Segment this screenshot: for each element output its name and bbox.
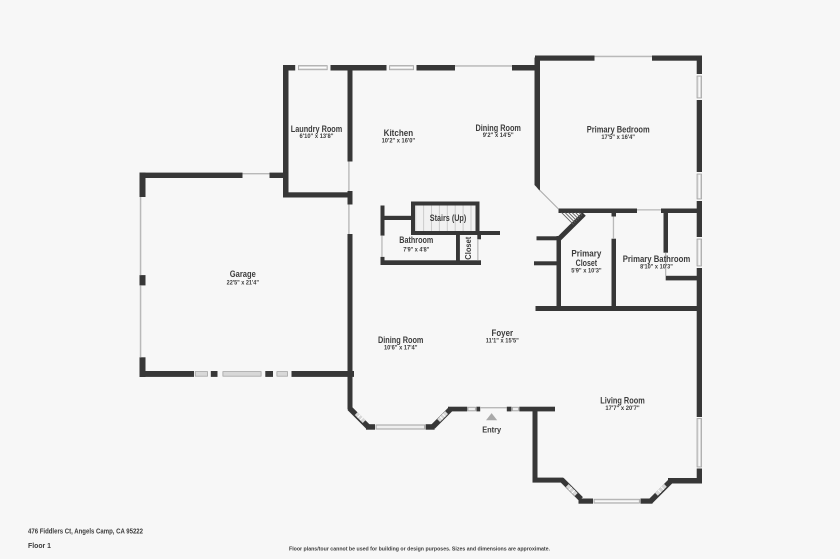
svg-text:Floor plans/tour cannot be use: Floor plans/tour cannot be used for buil… bbox=[289, 546, 550, 552]
svg-text:9'2" x 14'5": 9'2" x 14'5" bbox=[483, 133, 514, 139]
svg-text:Living Room: Living Room bbox=[600, 395, 645, 405]
svg-text:Garage: Garage bbox=[230, 269, 256, 279]
svg-text:Primary Bedroom: Primary Bedroom bbox=[587, 125, 650, 135]
svg-text:17'7" x 20'7": 17'7" x 20'7" bbox=[605, 406, 639, 412]
svg-text:6'10" x 13'8": 6'10" x 13'8" bbox=[300, 134, 334, 140]
svg-text:8'10" x 10'3": 8'10" x 10'3" bbox=[640, 265, 673, 271]
svg-text:11'1" x 15'5": 11'1" x 15'5" bbox=[486, 339, 519, 345]
svg-text:Bathroom: Bathroom bbox=[399, 235, 433, 245]
svg-text:Dining Room: Dining Room bbox=[475, 123, 521, 133]
svg-text:Floor 1: Floor 1 bbox=[28, 541, 51, 550]
svg-text:22'5" x 21'4": 22'5" x 21'4" bbox=[227, 281, 259, 287]
svg-text:10'2" x 16'0": 10'2" x 16'0" bbox=[382, 138, 416, 144]
svg-text:Primary Bathroom: Primary Bathroom bbox=[623, 254, 691, 264]
svg-text:Laundry Room: Laundry Room bbox=[291, 124, 343, 134]
svg-text:Closet: Closet bbox=[464, 236, 473, 259]
svg-text:Entry: Entry bbox=[482, 424, 501, 434]
svg-text:Closet: Closet bbox=[576, 258, 598, 268]
svg-text:Stairs (Up): Stairs (Up) bbox=[430, 213, 467, 223]
svg-text:Foyer: Foyer bbox=[492, 328, 514, 338]
svg-text:Dining Room: Dining Room bbox=[378, 335, 424, 345]
svg-text:10'6" x 17'4": 10'6" x 17'4" bbox=[384, 345, 418, 351]
svg-text:7'9" x 4'8": 7'9" x 4'8" bbox=[403, 247, 429, 253]
svg-text:17'5" x 16'4": 17'5" x 16'4" bbox=[601, 135, 635, 141]
svg-text:476 Fiddlers Ct, Angels Camp,: 476 Fiddlers Ct, Angels Camp, CA 95222 bbox=[28, 527, 143, 536]
svg-text:5'9" x 10'3": 5'9" x 10'3" bbox=[571, 269, 602, 275]
svg-text:Kitchen: Kitchen bbox=[384, 128, 414, 138]
